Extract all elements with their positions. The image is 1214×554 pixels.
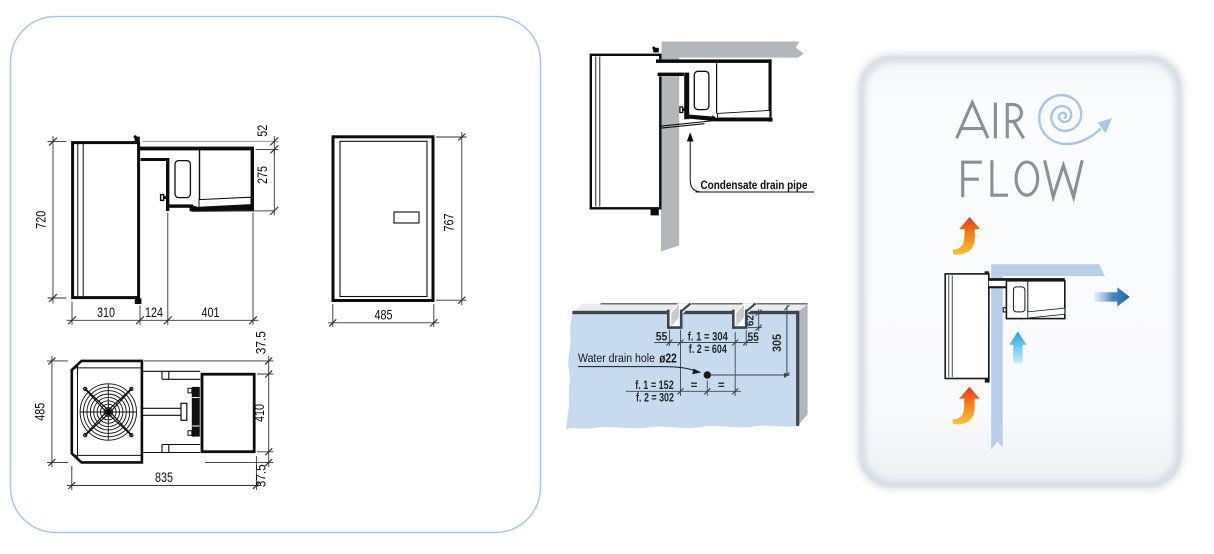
svg-text:835: 835 [155,470,173,485]
svg-text:f. 2 = 604: f. 2 = 604 [689,343,727,356]
svg-text:55: 55 [747,331,759,344]
svg-text:485: 485 [375,307,393,322]
svg-text:401: 401 [202,305,220,320]
svg-text:305: 305 [771,333,784,352]
svg-text:f. 1 = 152: f. 1 = 152 [635,379,674,392]
svg-text:275: 275 [255,166,270,184]
svg-text:f. 2 = 302: f. 2 = 302 [636,391,674,404]
svg-text:310: 310 [97,305,115,320]
svg-text:52: 52 [255,125,270,137]
svg-text:Condensate drain pipe: Condensate drain pipe [701,178,808,192]
svg-text:720: 720 [34,211,49,229]
svg-text:Water drain hole: Water drain hole [578,351,655,365]
svg-text:55: 55 [656,330,668,343]
svg-text:f. 1 = 304: f. 1 = 304 [688,330,728,343]
svg-text:37.5: 37.5 [254,464,269,487]
svg-text:=: = [691,379,698,392]
svg-text:=: = [718,379,725,392]
svg-text:62: 62 [745,315,757,326]
svg-text:124: 124 [145,305,163,320]
svg-text:410: 410 [252,404,267,422]
svg-text:37.5: 37.5 [254,331,269,354]
svg-text:485: 485 [33,403,48,421]
svg-text:767: 767 [442,214,457,232]
svg-text:ø22: ø22 [659,351,677,365]
